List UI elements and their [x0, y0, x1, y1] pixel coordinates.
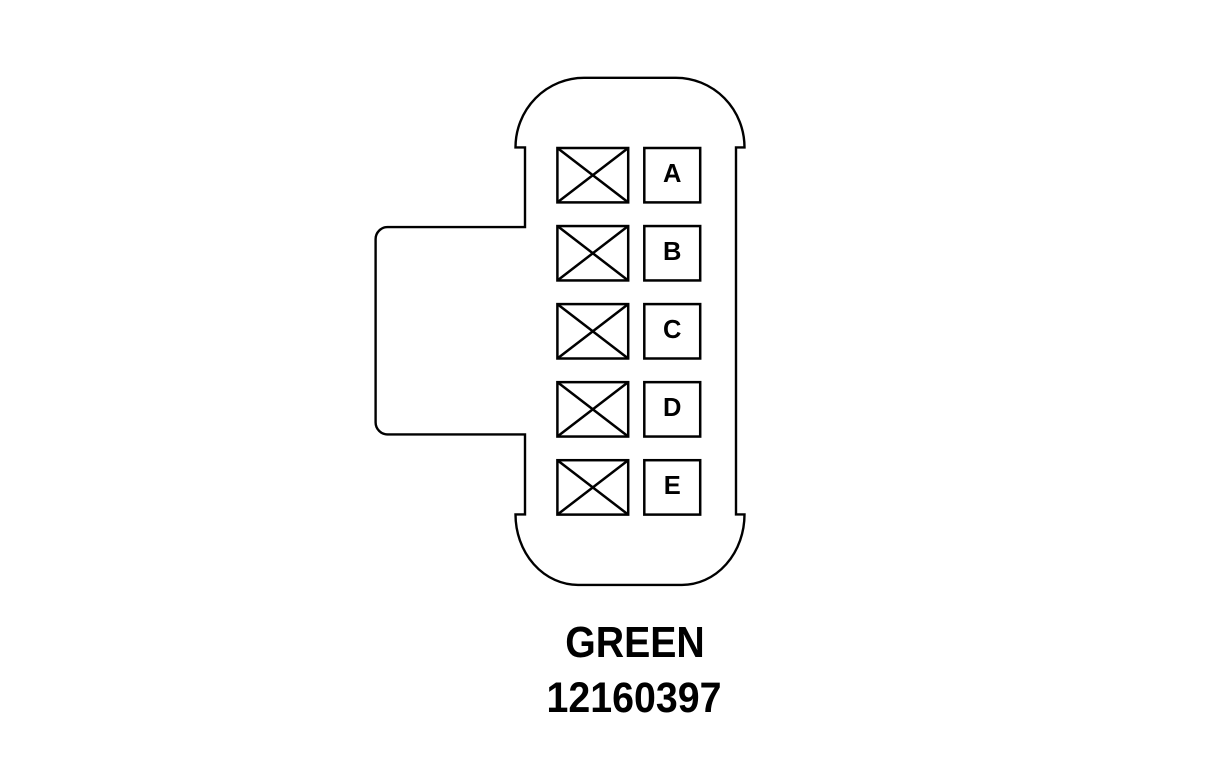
svg-text:A: A	[663, 160, 681, 188]
svg-text:12160397: 12160397	[547, 674, 722, 722]
svg-text:C: C	[663, 316, 681, 344]
svg-text:E: E	[664, 472, 681, 500]
svg-text:GREEN: GREEN	[565, 618, 705, 667]
svg-text:B: B	[663, 238, 681, 266]
svg-text:D: D	[663, 394, 681, 422]
